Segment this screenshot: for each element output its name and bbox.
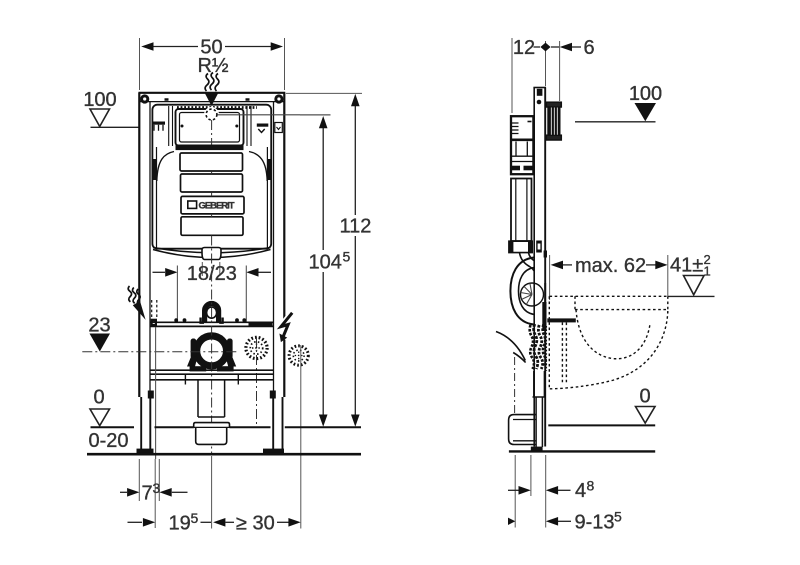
svg-text:5: 5 — [614, 509, 622, 525]
svg-text:4: 4 — [575, 480, 586, 502]
svg-text:3: 3 — [153, 480, 161, 496]
svg-text:12: 12 — [513, 37, 535, 59]
svg-text:0-20: 0-20 — [89, 430, 129, 452]
svg-text:5: 5 — [343, 249, 351, 265]
svg-text:100: 100 — [83, 89, 116, 111]
svg-text:max. 62: max. 62 — [575, 255, 646, 277]
svg-text:9-13: 9-13 — [575, 511, 615, 533]
svg-text:8: 8 — [587, 478, 595, 494]
svg-text:41±: 41± — [670, 255, 703, 277]
svg-text:1: 1 — [704, 264, 711, 279]
svg-text:112: 112 — [340, 216, 372, 238]
svg-text:R½: R½ — [197, 55, 228, 77]
svg-text:≥ 30: ≥ 30 — [236, 513, 275, 535]
svg-text:19: 19 — [169, 513, 191, 535]
svg-text:6: 6 — [583, 37, 594, 59]
svg-text:104: 104 — [309, 252, 342, 274]
svg-text:GEBERIT: GEBERIT — [199, 201, 235, 212]
svg-text:100: 100 — [629, 83, 662, 105]
svg-text:5: 5 — [191, 510, 199, 526]
svg-text:0: 0 — [93, 387, 104, 409]
svg-text:0: 0 — [639, 386, 650, 408]
svg-text:7: 7 — [142, 483, 153, 505]
svg-text:23: 23 — [88, 315, 110, 337]
